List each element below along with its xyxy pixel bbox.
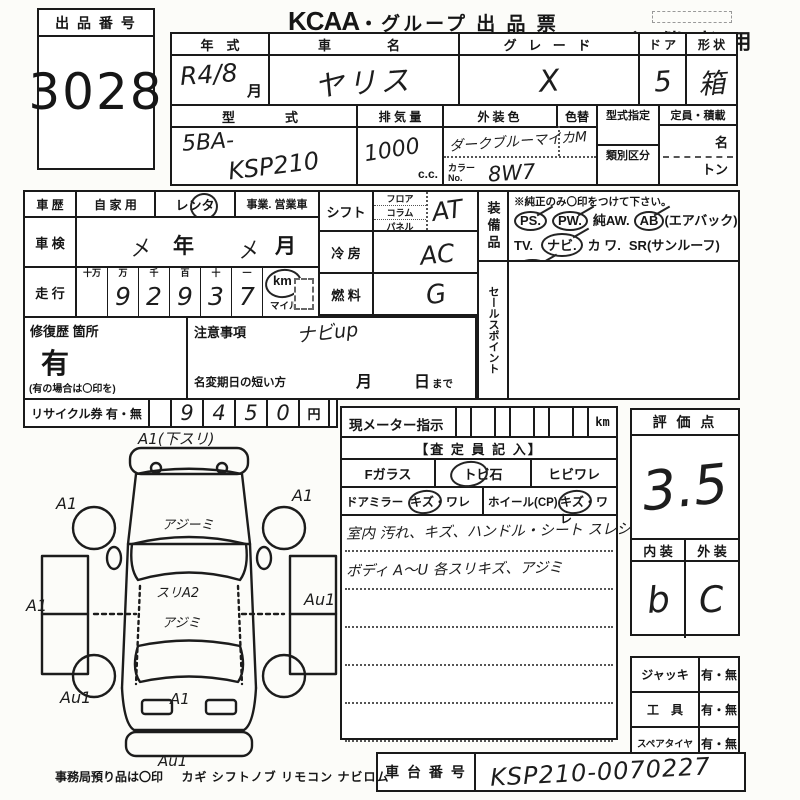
mileage-col-label: 十: [201, 268, 231, 279]
repair-cell: 修復歴 箇所 有 (有の場合は〇印を): [23, 316, 188, 400]
car-name-label: 車 名: [270, 34, 458, 56]
auction-sheet: { "colors":{"paper":"#fcfcf9","ink":"#1a…: [0, 0, 800, 800]
diagram-label-left-bottom: Au1: [60, 688, 91, 707]
diagram-label-right-top: A1: [292, 486, 313, 505]
mileage-digit: [77, 279, 107, 313]
rename-deadline-label: 名変期日の短い方: [194, 374, 286, 390]
car-damage-diagram: A1(下スリ) A1 A1 A1 Au1 Au1 A1 Au1 アジーミ スリA…: [22, 428, 340, 778]
equipment-ab-suffix: (エアバック): [664, 213, 737, 228]
diagram-label-rear: A1: [170, 690, 190, 708]
type-designation-label: 型式指定: [598, 106, 658, 124]
lot-number-box: 出 品 番 号 3028: [37, 8, 155, 170]
cell-year: 年 式 R4/8 月: [170, 32, 270, 106]
repair-label: 修復歴 箇所: [30, 321, 99, 340]
equipment-aw: 純AW.: [593, 213, 630, 228]
mileage-col-10k: 万 9: [108, 268, 139, 316]
car-name-value: ヤリス: [313, 57, 415, 106]
assessor-entry-label: 【査 定 員 記 入】: [342, 438, 616, 458]
mileage-col-label: 百: [170, 268, 200, 279]
inspection-label: 車 検: [25, 218, 77, 266]
history-business: 事業. 営業車: [236, 192, 318, 216]
equipment-kawa: カ ワ.: [588, 238, 621, 253]
mileage-row: 走 行 十万 万 9 千 2 百 9 十 3 一 7 km マイル: [23, 266, 320, 318]
jack-label: ジャッキ: [632, 658, 700, 691]
stone-chip-label: トビ石: [436, 460, 530, 486]
color-change-label: 色替: [556, 106, 596, 126]
diagram-label-top: A1(下スリ): [138, 428, 215, 449]
inspection-year-mark: メ: [127, 230, 152, 262]
history-row: 車 歴 自 家 用 レンタ 事業. 営業車: [23, 190, 320, 218]
door-mirror-damage-text: キズ・ワレ: [410, 495, 470, 509]
rename-made: まで: [432, 376, 453, 391]
exterior-grade: C: [698, 578, 727, 621]
interior-label: 内 装: [632, 540, 686, 560]
equipment-line-2: TV.ナビ.カ ワ.SR(サンルーフ): [514, 233, 738, 257]
front-glass-label: Fガラス: [342, 460, 436, 486]
model-prefix: 5BA-: [181, 128, 235, 157]
displacement-unit: c.c.: [418, 167, 438, 181]
year-value: R4/8: [179, 58, 238, 91]
equipment-side-label: 装備品: [484, 201, 503, 252]
recycle-digit: 0: [268, 400, 300, 426]
fuel-row: 燃 料 G: [318, 272, 479, 316]
displacement-label: 排 気 量: [358, 106, 442, 128]
capacity-tons-unit: トン: [702, 159, 728, 178]
cell-car-name: 車 名 ヤリス: [268, 32, 460, 106]
mileage-col-1: 一 7: [232, 268, 263, 316]
door-label: ド ア: [640, 34, 685, 56]
assessor-box: 現メーター指示 km 【査 定 員 記 入】 Fガラス トビ石 ヒビワレ ドアミ…: [340, 406, 618, 740]
crack-label: ヒビワレ: [530, 460, 616, 486]
recycle-digit: 4: [204, 400, 236, 426]
interior-grade: b: [645, 579, 671, 622]
recycle-label: リサイクル券 有・無: [25, 400, 150, 426]
history-label: 車 歴: [25, 192, 77, 216]
diagram-note-hood: アジーミ: [162, 514, 213, 533]
color-no-value: 8W7: [487, 159, 536, 186]
mirror-wheel-row: ドアミラー キズ・ワレ ホイール(CP) キズ・ワレ: [342, 486, 616, 516]
evaluation-label: 評 価 点: [632, 410, 738, 436]
mileage-digit: 7: [232, 279, 262, 313]
cooling-row: 冷 房 AC: [318, 230, 479, 274]
month-suffix: 月: [247, 80, 262, 101]
mileage-digit: 9: [108, 279, 138, 313]
shift-row: シフト フロア コラム パネル AT: [318, 190, 479, 232]
deposit-items: カギ シフトノブ リモコン ナビロム: [181, 770, 389, 784]
shift-value: AT: [430, 194, 464, 227]
km-unit: km: [273, 273, 292, 288]
chassis-number-value: KSP210-0070227: [489, 752, 711, 792]
lot-number-value: 3028: [39, 37, 153, 147]
circled-ps: PS.: [514, 211, 547, 231]
current-meter-row: 現メーター指示 km: [342, 408, 616, 438]
circled-pw: PW.: [552, 211, 588, 231]
cell-door: ド ア 5: [638, 32, 687, 106]
equipment-navi: ナビ.: [547, 238, 577, 253]
equipment-ab: AB: [640, 213, 659, 228]
cell-class-division: 類別区分: [596, 144, 660, 186]
chassis-number-label: 車 台 番 号: [378, 754, 476, 790]
sales-point-label: セールスポイント: [485, 286, 501, 374]
diagram-label-left-mid: A1: [26, 596, 47, 615]
office-deposit-note: 事務局預り品は〇印: [55, 770, 163, 784]
cell-grade: グ レ ー ド X: [458, 32, 640, 106]
model-label: 型 式: [172, 106, 356, 128]
cell-capacity: 定員・積載 名 トン: [658, 104, 738, 186]
exterior-color-label: 外装色: [444, 106, 556, 126]
evaluation-score: 3.5: [639, 451, 731, 523]
mileage-empty-dashed-box: [294, 278, 314, 310]
recycle-digit: 5: [236, 400, 268, 426]
cell-model-code: 型 式 5BA- KSP210: [170, 104, 358, 186]
equipment-line-1: PS.PW.純AW.AB(エアバック): [514, 210, 738, 231]
circled-ab: AB: [634, 211, 665, 231]
cooling-label: 冷 房: [320, 232, 374, 272]
accessories-box: ジャッキ 有・無 工 具 有・無 スペアタイヤ 有・無: [630, 656, 740, 758]
mileage-digit: 9: [170, 279, 200, 313]
diagram-note-roof-a: スリA2: [156, 582, 199, 601]
shift-option: コラム: [374, 206, 426, 220]
grade-label: グ レ ー ド: [460, 34, 638, 56]
displacement-value: 1000: [362, 134, 421, 167]
mileage-col-100: 百 9: [170, 268, 201, 316]
shift-label: シフト: [320, 192, 374, 230]
tool-value: 有・無: [700, 693, 738, 726]
current-meter-label: 現メーター指示: [342, 408, 455, 436]
caution-value: ナビup: [295, 315, 360, 348]
inspection-month-mark: メ: [235, 232, 260, 264]
door-value: 5: [652, 64, 672, 98]
tool-label: 工 具: [632, 693, 700, 726]
repair-note: (有の場合は〇印を): [29, 380, 116, 395]
year-label: 年 式: [172, 34, 268, 56]
fuel-label: 燃 料: [320, 274, 374, 314]
history-rental-label: レンタ: [175, 195, 214, 214]
caution-label: 注意事項: [194, 322, 246, 341]
caution-cell: 注意事項 ナビup 名変期日の短い方 月 日 まで: [186, 316, 477, 400]
diagram-note-roof-b: アジミ: [162, 612, 200, 631]
equipment-block: 装備品 ※純正のみ〇印をつけて下さい。 PS.PW.純AW.AB(エアバック) …: [477, 190, 740, 262]
door-mirror-damage: キズ・ワレ: [410, 488, 482, 514]
repair-value: 有: [41, 342, 69, 382]
circled-navi: ナビ.: [541, 233, 583, 257]
mileage-digit: 3: [201, 279, 231, 313]
sales-point-block: セールスポイント: [477, 260, 740, 400]
rename-day: 日: [414, 368, 430, 392]
lot-number-label: 出 品 番 号: [39, 10, 153, 37]
shift-option: フロア: [374, 192, 426, 206]
sales-point-empty-area: [509, 262, 738, 398]
meter-km-unit: km: [587, 408, 616, 436]
assessor-notes-area: 室内 汚れ、キズ、ハンドル・シート スレシミ ボディ A〜U 各スリキズ、アジミ: [342, 516, 616, 746]
grade-value: X: [538, 63, 561, 99]
fuel-value: G: [424, 279, 448, 312]
mileage-digit: 2: [139, 279, 169, 313]
equipment-sr: SR(サンルーフ): [629, 238, 720, 253]
assessor-note-2: ボディ A〜U 各スリキズ、アジミ: [346, 556, 563, 581]
scan-artifact: [652, 11, 732, 23]
evaluation-box: 評 価 点 3.5 内 装 外 装 b C: [630, 408, 740, 636]
color-no-label: カラーNo.: [448, 163, 480, 183]
inspection-month-unit: 月: [275, 230, 296, 260]
mileage-label: 走 行: [25, 268, 77, 316]
mileage-col-10: 十 3: [201, 268, 232, 316]
assessor-note-1: 室内 汚れ、キズ、ハンドル・シート スレシミ: [346, 517, 646, 543]
inspection-year-unit: 年: [173, 230, 194, 260]
model-code: KSP210: [227, 147, 321, 186]
chassis-number-box: 車 台 番 号 KSP210-0070227: [376, 752, 746, 792]
equipment-pw: PW.: [558, 213, 582, 228]
cell-displacement: 排 気 量 1000 c.c.: [356, 104, 444, 186]
mileage-col-label: 万: [108, 268, 138, 279]
shape-value: 箱: [697, 61, 727, 102]
capacity-label: 定員・積載: [660, 106, 736, 126]
cooling-value: AC: [419, 238, 456, 270]
shift-options: フロア コラム パネル: [374, 192, 428, 230]
wheel-label: ホイール(CP): [482, 488, 560, 514]
stone-chip-text: トビ石: [463, 464, 502, 483]
jack-value: 有・無: [700, 658, 738, 691]
diagram-label-right-mid: Au1: [304, 590, 335, 609]
rename-month: 月: [356, 368, 372, 392]
exterior-color-value: ダークブルーマイカM: [448, 126, 587, 156]
footer-note: 事務局預り品は〇印 カギ シフトノブ リモコン ナビロム: [55, 768, 389, 786]
exterior-label: 外 装: [686, 540, 738, 560]
capacity-persons-unit: 名: [715, 132, 728, 151]
door-mirror-label: ドアミラー: [342, 488, 410, 514]
recycle-digit: 9: [172, 400, 204, 426]
mileage-col-label: 一: [232, 268, 262, 279]
class-division-label: 類別区分: [598, 146, 658, 164]
mileage-col-100k: 十万: [77, 268, 108, 316]
mileage-col-label: 千: [139, 268, 169, 279]
shape-label: 形 状: [687, 34, 736, 56]
recycle-row: リサイクル券 有・無 9 4 5 0 円: [23, 398, 338, 428]
equipment-ps: PS.: [520, 213, 541, 228]
cell-exterior-color: 外装色 色替 ダークブルーマイカM カラーNo. 8W7: [442, 104, 598, 186]
diagram-label-left-top: A1: [56, 494, 77, 513]
wheel-damage: キズ・ワレ: [560, 488, 616, 514]
history-private: 自 家 用: [77, 192, 156, 216]
recycle-yen-unit: 円: [300, 400, 330, 426]
cell-shape: 形 状 箱: [685, 32, 738, 106]
mileage-col-1k: 千 2: [139, 268, 170, 316]
glass-row: Fガラス トビ石 ヒビワレ: [342, 458, 616, 486]
equipment-tv: TV.: [514, 238, 533, 253]
inspection-row: 車 検 メ 年 メ 月: [23, 216, 320, 268]
history-rental: レンタ: [156, 192, 236, 216]
cell-type-designation: 型式指定: [596, 104, 660, 146]
mileage-col-label: 十万: [77, 268, 107, 279]
